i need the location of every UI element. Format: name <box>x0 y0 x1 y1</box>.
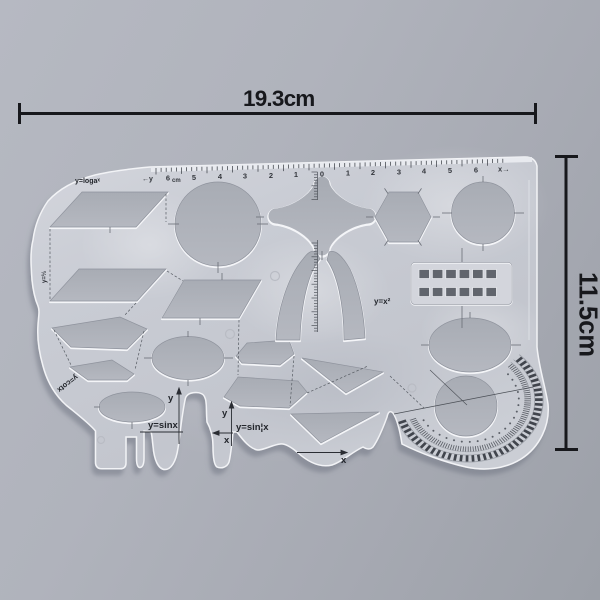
svg-text:y=logaˣ: y=logaˣ <box>75 178 100 185</box>
svg-text:cm: cm <box>172 178 181 184</box>
svg-text:6: 6 <box>474 165 478 174</box>
svg-text:0: 0 <box>320 169 324 178</box>
svg-text:←y: ←y <box>142 176 153 183</box>
svg-text:5: 5 <box>192 173 196 182</box>
svg-text:y=x²: y=x² <box>374 297 391 306</box>
svg-text:3: 3 <box>243 172 247 181</box>
svg-text:x→: x→ <box>498 165 510 174</box>
svg-text:3: 3 <box>397 167 401 176</box>
svg-text:y=⅓: y=⅓ <box>42 271 48 283</box>
svg-text:x: x <box>224 435 230 446</box>
svg-text:2: 2 <box>371 168 375 177</box>
svg-text:2: 2 <box>269 171 273 180</box>
svg-text:y: y <box>222 408 228 419</box>
svg-text:y: y <box>168 393 174 404</box>
svg-text:y=sin¦x: y=sin¦x <box>236 422 269 433</box>
svg-text:1: 1 <box>346 169 350 178</box>
svg-text:y=sinx: y=sinx <box>148 420 179 431</box>
svg-text:5: 5 <box>448 166 452 175</box>
svg-text:x: x <box>341 455 347 466</box>
svg-text:6: 6 <box>166 174 170 183</box>
svg-text:1: 1 <box>294 170 298 179</box>
